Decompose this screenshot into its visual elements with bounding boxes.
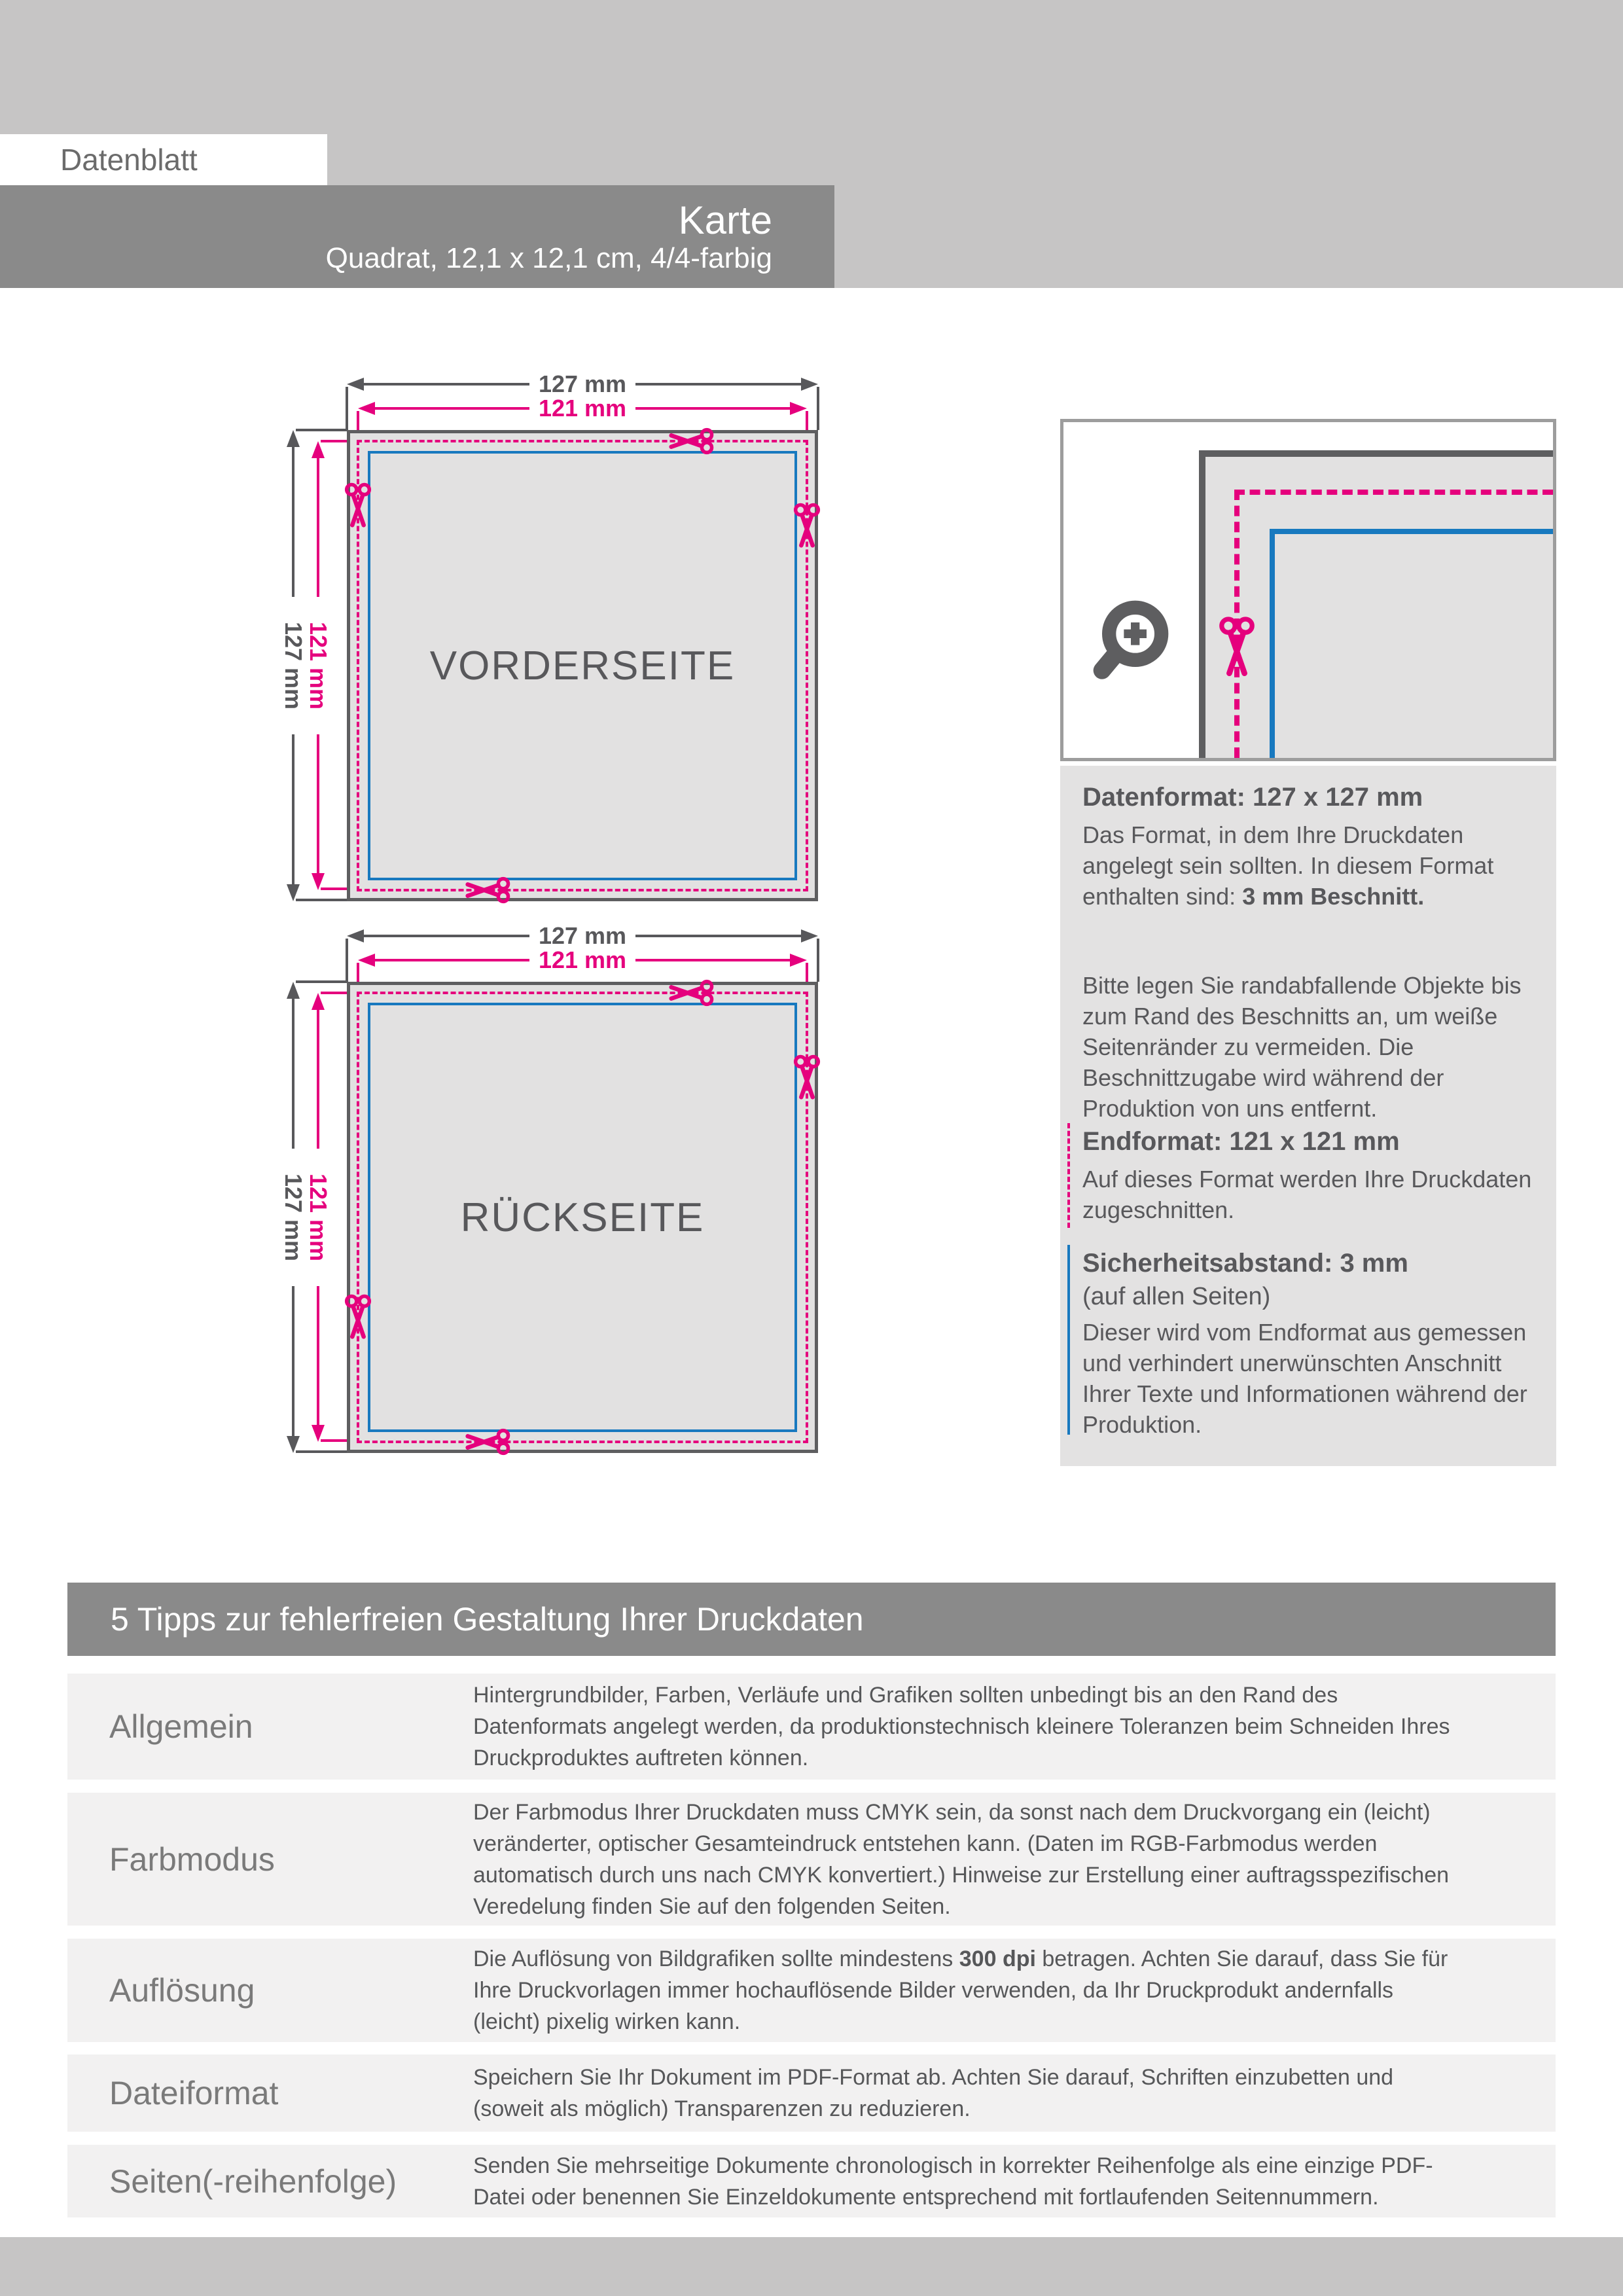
tips-section-header: 5 Tipps zur fehlerfreien Gestaltung Ihre… [67,1583,1556,1656]
back-width-dimension-outer: 127 mm [347,926,818,946]
arrow-up-icon [287,430,300,447]
front-width-dimension-outer: 127 mm [347,374,818,394]
scissors-icon [344,481,372,531]
tip-label: Dateiformat [67,2074,473,2112]
connector-line [346,939,348,982]
arrow-up-icon [312,441,325,458]
tip-text-part: Der Farbmodus Ihrer Druckdaten muss CMYK… [473,1800,1449,1919]
dimension-line [317,1010,319,1149]
dimension-line [375,407,529,410]
front-height-dimension-trim: 121 mm [309,441,327,890]
back-height-dimension-trim: 121 mm [309,993,327,1442]
bottom-gray-band [0,2237,1623,2296]
arrow-right-icon [790,954,807,967]
arrow-up-icon [312,993,325,1010]
connector-line [296,980,347,983]
tips-title: 5 Tipps zur fehlerfreien Gestaltung Ihre… [67,1600,864,1638]
arrow-right-icon [801,929,818,942]
arrow-down-icon [287,884,300,901]
dimension-label: 121 mm [304,622,332,709]
dimension-line [292,999,294,1149]
dimension-label: 127 mm [529,370,635,398]
arrow-left-icon [347,378,364,391]
datenformat-p1-bold: 3 mm Beschnitt. [1242,883,1424,910]
tip-row-allgemein: Allgemein Hintergrundbilder, Farben, Ver… [67,1674,1556,1780]
scissors-icon [462,876,512,905]
back-safety-line [368,1003,797,1432]
dimension-line [292,734,294,884]
dimension-line [375,959,529,961]
dimension-line [364,935,529,937]
arrow-down-icon [312,1425,325,1442]
scissors-icon [793,501,821,551]
sicherheitsabstand-marker-line [1067,1245,1070,1435]
connector-line [817,387,819,430]
tip-row-seitenreihenfolge: Seiten(-reihenfolge) Senden Sie mehrseit… [67,2145,1556,2217]
connector-line [296,899,347,901]
endformat-heading: Endformat: 121 x 121 mm [1082,1127,1541,1157]
connector-line [817,939,819,982]
arrow-down-icon [312,873,325,890]
scissors-icon [666,978,715,1007]
scissors-icon [344,1293,372,1342]
doc-type-label-box: Datenblatt [0,134,327,185]
zoom-magnifier-icon [1086,594,1191,698]
arrow-right-icon [790,402,807,415]
datasheet-page: Datenblatt Karte Quadrat, 12,1 x 12,1 cm… [0,0,1623,2296]
scissors-icon [1218,613,1256,682]
arrow-left-icon [358,402,375,415]
scissors-icon [462,1427,512,1456]
tip-text: Der Farbmodus Ihrer Druckdaten muss CMYK… [473,1797,1455,1922]
product-title: Karte [679,198,772,242]
tip-row-farbmodus: Farbmodus Der Farbmodus Ihrer Druckdaten… [67,1793,1556,1926]
dimension-label: 127 mm [529,922,635,950]
datenformat-paragraph-1: Das Format, in dem Ihre Druckdaten angel… [1082,819,1541,912]
arrow-left-icon [347,929,364,942]
dimension-line [635,407,790,410]
sicherheitsabstand-paragraph: Dieser wird vom Endformat aus gemessen u… [1082,1317,1541,1440]
tip-text: Senden Sie mehrseitige Dokumente chronol… [473,2150,1455,2213]
product-subtitle: Quadrat, 12,1 x 12,1 cm, 4/4-farbig [326,242,772,276]
tip-text-part: Die Auflösung von Bildgrafiken sollte mi… [473,1946,959,1971]
endformat-paragraph: Auf dieses Format werden Ihre Druckdaten… [1082,1164,1541,1225]
arrow-down-icon [287,1436,300,1453]
tip-label: Seiten(-reihenfolge) [67,2162,473,2200]
doc-type-label: Datenblatt [0,142,198,177]
dimension-line [364,383,529,386]
dimension-line [317,458,319,597]
tip-label: Farbmodus [67,1840,473,1878]
zoomed-safety-line [1270,529,1553,758]
dimension-line [317,1286,319,1425]
bleed-zoom-detail-box [1060,419,1556,761]
endformat-marker-line [1067,1123,1070,1228]
connector-line [296,429,347,431]
tip-text: Speichern Sie Ihr Dokument im PDF-Format… [473,2062,1455,2125]
dimension-line [292,447,294,597]
dimension-line [635,959,790,961]
dimension-line [635,383,801,386]
scissors-icon [793,1053,821,1103]
dimension-label: 121 mm [304,1174,332,1261]
dimension-label: 121 mm [529,395,635,422]
format-info-panel: Datenformat: 127 x 127 mm Das Format, in… [1060,766,1556,1466]
arrow-up-icon [287,982,300,999]
arrow-right-icon [801,378,818,391]
dimension-line [635,935,801,937]
tip-row-aufloesung: Auflösung Die Auflösung von Bildgrafiken… [67,1939,1556,2042]
tip-text-part: Speichern Sie Ihr Dokument im PDF-Format… [473,2065,1393,2121]
sicherheitsabstand-subheading: (auf allen Seiten) [1082,1283,1541,1311]
tip-label: Auflösung [67,1971,473,2009]
front-width-dimension-trim: 121 mm [358,399,807,418]
arrow-left-icon [358,954,375,967]
tip-text-part: Hintergrundbilder, Farben, Verläufe und … [473,1683,1450,1770]
tip-text: Die Auflösung von Bildgrafiken sollte mi… [473,1943,1455,2037]
back-width-dimension-trim: 121 mm [358,950,807,970]
dimension-line [317,734,319,873]
tip-text-part: Senden Sie mehrseitige Dokumente chronol… [473,2153,1433,2210]
scissors-icon [666,427,715,456]
datenformat-heading: Datenformat: 127 x 127 mm [1082,783,1541,812]
tip-row-dateiformat: Dateiformat Speichern Sie Ihr Dokument i… [67,2054,1556,2132]
datenformat-paragraph-2: Bitte legen Sie randabfallende Objekte b… [1082,970,1541,1124]
sicherheitsabstand-heading: Sicherheitsabstand: 3 mm [1082,1249,1541,1278]
dimension-label: 121 mm [529,946,635,974]
connector-line [296,1450,347,1453]
dimension-line [292,1286,294,1436]
product-header-bar: Karte Quadrat, 12,1 x 12,1 cm, 4/4-farbi… [0,185,834,288]
tip-text-bold: 300 dpi [959,1946,1036,1971]
connector-line [346,387,348,430]
tip-label: Allgemein [67,1708,473,1746]
front-safety-line [368,451,797,880]
tip-text: Hintergrundbilder, Farben, Verläufe und … [473,1679,1455,1774]
